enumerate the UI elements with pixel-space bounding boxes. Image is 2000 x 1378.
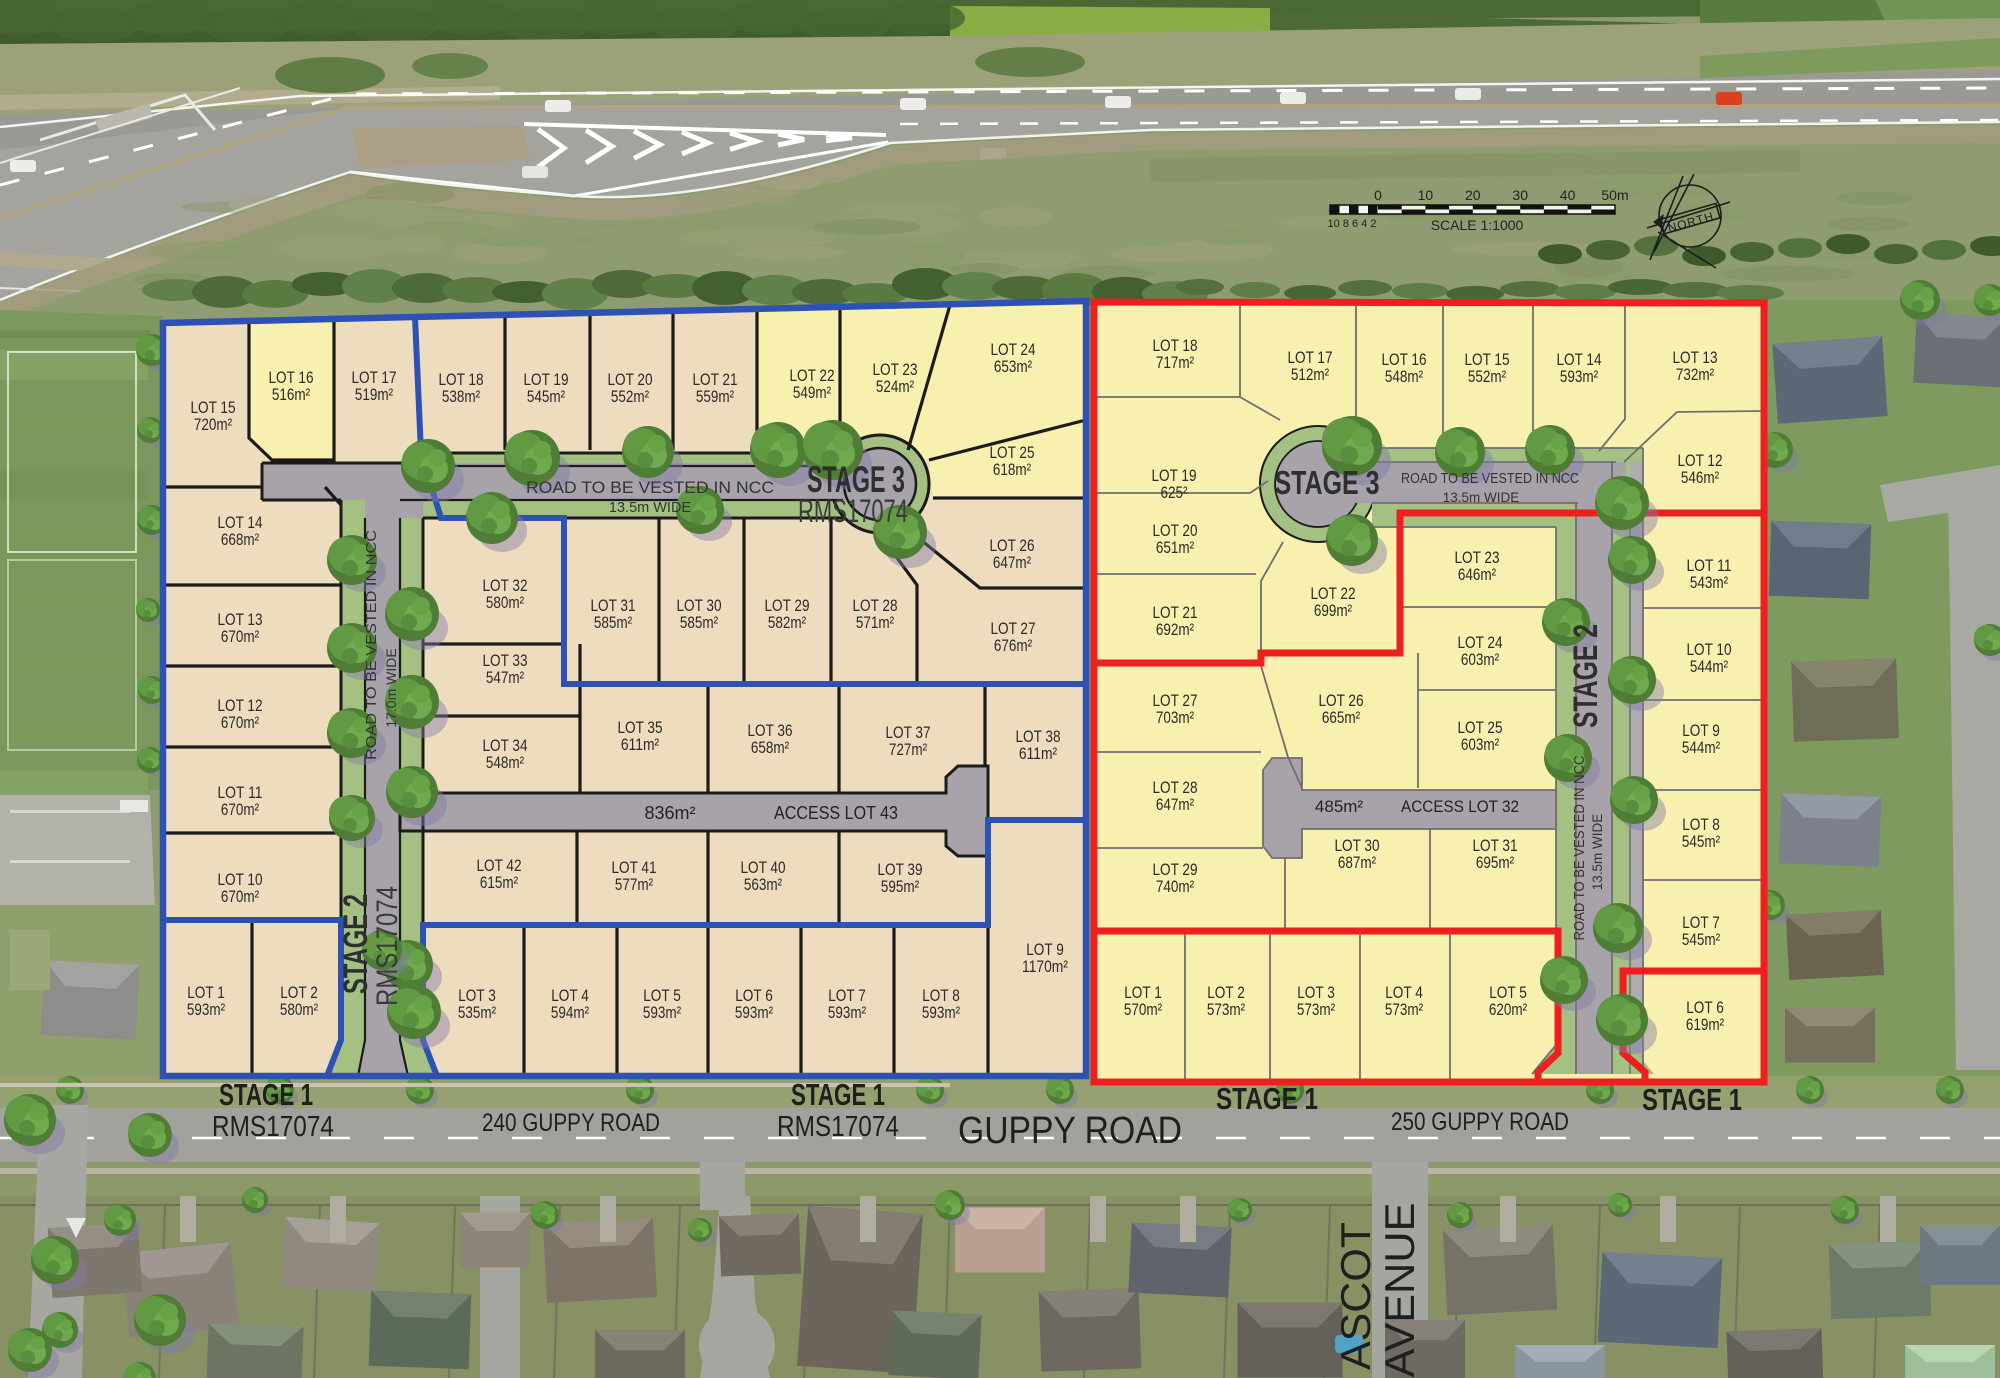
svg-text:LOT 3: LOT 3 — [1297, 984, 1335, 1002]
svg-text:13.5m WIDE: 13.5m WIDE — [609, 500, 692, 516]
svg-text:571m²: 571m² — [856, 614, 895, 632]
svg-text:LOT 24: LOT 24 — [1457, 634, 1502, 652]
svg-text:LOT 10: LOT 10 — [1686, 641, 1731, 659]
svg-text:620m²: 620m² — [1489, 1001, 1528, 1019]
svg-text:ROAD TO BE VESTED IN NCC: ROAD TO BE VESTED IN NCC — [1401, 471, 1579, 487]
svg-text:695m²: 695m² — [1476, 854, 1515, 872]
svg-text:670m²: 670m² — [221, 714, 260, 732]
svg-text:10 8 6 4 2: 10 8 6 4 2 — [1328, 218, 1377, 230]
svg-text:545m²: 545m² — [1682, 833, 1721, 851]
svg-text:LOT 22: LOT 22 — [1310, 585, 1355, 603]
svg-text:LOT 6: LOT 6 — [1686, 999, 1724, 1017]
svg-text:LOT 33: LOT 33 — [482, 652, 527, 670]
svg-text:LOT 35: LOT 35 — [617, 719, 662, 737]
svg-text:17.0m WIDE: 17.0m WIDE — [383, 648, 399, 727]
svg-text:STAGE 1: STAGE 1 — [1642, 1082, 1742, 1117]
svg-text:717m²: 717m² — [1156, 354, 1195, 372]
svg-text:647m²: 647m² — [1156, 796, 1195, 814]
svg-text:611m²: 611m² — [621, 736, 660, 754]
svg-text:LOT 25: LOT 25 — [1457, 719, 1502, 737]
svg-text:727m²: 727m² — [889, 741, 928, 759]
svg-text:544m²: 544m² — [1682, 739, 1721, 757]
svg-text:LOT 28: LOT 28 — [852, 597, 897, 615]
svg-text:552m²: 552m² — [1468, 368, 1507, 386]
svg-text:LOT 26: LOT 26 — [989, 537, 1034, 555]
svg-text:LOT 5: LOT 5 — [1489, 984, 1527, 1002]
svg-text:LOT 19: LOT 19 — [1151, 467, 1196, 485]
svg-text:LOT 14: LOT 14 — [1556, 351, 1601, 369]
svg-text:LOT 32: LOT 32 — [482, 577, 527, 595]
svg-text:740m²: 740m² — [1156, 878, 1195, 896]
svg-text:LOT 27: LOT 27 — [990, 620, 1035, 638]
svg-text:SCALE 1:1000: SCALE 1:1000 — [1431, 217, 1524, 233]
svg-text:593m²: 593m² — [187, 1001, 226, 1019]
svg-text:720m²: 720m² — [194, 416, 233, 434]
svg-text:LOT 34: LOT 34 — [482, 737, 527, 755]
svg-text:603m²: 603m² — [1461, 651, 1500, 669]
svg-text:524m²: 524m² — [876, 378, 915, 396]
svg-text:595m²: 595m² — [881, 878, 920, 896]
svg-text:250 GUPPY ROAD: 250 GUPPY ROAD — [1391, 1108, 1569, 1136]
svg-text:LOT 17: LOT 17 — [351, 369, 396, 387]
svg-text:703m²: 703m² — [1156, 709, 1195, 727]
svg-text:546m²: 546m² — [1681, 469, 1720, 487]
svg-text:LOT 20: LOT 20 — [607, 371, 652, 389]
svg-text:594m²: 594m² — [551, 1004, 590, 1022]
svg-text:670m²: 670m² — [221, 628, 260, 646]
svg-text:LOT 19: LOT 19 — [523, 371, 568, 389]
svg-text:LOT 17: LOT 17 — [1287, 349, 1332, 367]
svg-text:668m²: 668m² — [221, 531, 260, 549]
svg-text:LOT 27: LOT 27 — [1152, 692, 1197, 710]
svg-text:LOT 6: LOT 6 — [735, 987, 773, 1005]
svg-text:STAGE 1: STAGE 1 — [219, 1077, 313, 1112]
svg-text:LOT 1: LOT 1 — [187, 984, 225, 1002]
svg-text:653m²: 653m² — [994, 358, 1033, 376]
svg-text:699m²: 699m² — [1314, 602, 1353, 620]
svg-text:619m²: 619m² — [1686, 1016, 1725, 1034]
svg-text:618m²: 618m² — [993, 461, 1032, 479]
svg-text:577m²: 577m² — [615, 876, 654, 894]
svg-text:LOT 1: LOT 1 — [1124, 984, 1162, 1002]
svg-text:611m²: 611m² — [1019, 745, 1058, 763]
svg-text:676m²: 676m² — [994, 637, 1033, 655]
svg-text:RMS17074: RMS17074 — [212, 1111, 334, 1143]
svg-text:LOT 3: LOT 3 — [458, 987, 496, 1005]
svg-text:573m²: 573m² — [1385, 1001, 1424, 1019]
svg-text:580m²: 580m² — [486, 594, 525, 612]
svg-text:516m²: 516m² — [272, 386, 311, 404]
svg-text:LOT 7: LOT 7 — [828, 987, 866, 1005]
svg-text:GUPPY ROAD: GUPPY ROAD — [958, 1110, 1182, 1152]
svg-text:LOT 16: LOT 16 — [1381, 351, 1426, 369]
svg-text:ASCOT: ASCOT — [1332, 1222, 1379, 1370]
svg-text:545m²: 545m² — [527, 388, 566, 406]
svg-text:AVENUE: AVENUE — [1376, 1203, 1423, 1378]
svg-text:670m²: 670m² — [221, 801, 260, 819]
svg-text:10: 10 — [1418, 187, 1434, 203]
svg-text:13.5m WIDE: 13.5m WIDE — [1443, 490, 1520, 505]
svg-text:538m²: 538m² — [442, 388, 481, 406]
svg-text:615m²: 615m² — [480, 874, 519, 892]
svg-text:LOT 9: LOT 9 — [1682, 722, 1720, 740]
svg-text:570m²: 570m² — [1124, 1001, 1163, 1019]
svg-text:593m²: 593m² — [735, 1004, 774, 1022]
svg-text:670m²: 670m² — [221, 888, 260, 906]
svg-text:658m²: 658m² — [751, 739, 790, 757]
svg-text:732m²: 732m² — [1676, 366, 1715, 384]
svg-text:LOT 28: LOT 28 — [1152, 779, 1197, 797]
svg-text:512m²: 512m² — [1291, 366, 1330, 384]
svg-text:580m²: 580m² — [280, 1001, 319, 1019]
svg-text:LOT 29: LOT 29 — [1152, 861, 1197, 879]
svg-text:585m²: 585m² — [594, 614, 633, 632]
svg-text:LOT 30: LOT 30 — [676, 597, 721, 615]
svg-text:LOT 11: LOT 11 — [1686, 557, 1731, 575]
svg-text:LOT 7: LOT 7 — [1682, 914, 1720, 932]
svg-text:LOT 37: LOT 37 — [885, 724, 930, 742]
svg-text:STAGE 2: STAGE 2 — [1567, 624, 1605, 728]
svg-text:LOT 22: LOT 22 — [789, 367, 834, 385]
svg-text:LOT 10: LOT 10 — [217, 871, 262, 889]
svg-text:687m²: 687m² — [1338, 854, 1377, 872]
svg-text:519m²: 519m² — [355, 386, 394, 404]
svg-text:LOT 8: LOT 8 — [1682, 816, 1720, 834]
svg-text:LOT 25: LOT 25 — [989, 444, 1034, 462]
svg-text:LOT 2: LOT 2 — [280, 984, 318, 1002]
svg-text:545m²: 545m² — [1682, 931, 1721, 949]
svg-text:ROAD TO BE VESTED IN NCC: ROAD TO BE VESTED IN NCC — [1572, 756, 1588, 941]
svg-text:LOT 2: LOT 2 — [1207, 984, 1245, 1002]
svg-text:692m²: 692m² — [1156, 621, 1195, 639]
svg-text:563m²: 563m² — [744, 876, 783, 894]
svg-text:RMS17074: RMS17074 — [371, 886, 404, 1006]
svg-text:593m²: 593m² — [922, 1004, 961, 1022]
svg-text:LOT 9: LOT 9 — [1026, 941, 1064, 959]
svg-text:1170m²: 1170m² — [1022, 958, 1068, 976]
svg-text:647m²: 647m² — [993, 554, 1032, 572]
svg-text:ROAD TO BE VESTED IN NCC: ROAD TO BE VESTED IN NCC — [526, 479, 774, 497]
svg-text:0: 0 — [1374, 187, 1382, 203]
svg-text:646m²: 646m² — [1458, 566, 1497, 584]
svg-text:STAGE 1: STAGE 1 — [1216, 1081, 1318, 1116]
svg-text:LOT 42: LOT 42 — [476, 857, 521, 875]
svg-text:LOT 18: LOT 18 — [1152, 337, 1197, 355]
svg-text:LOT 13: LOT 13 — [1672, 349, 1717, 367]
svg-text:LOT 36: LOT 36 — [747, 722, 792, 740]
svg-text:LOT 4: LOT 4 — [551, 987, 589, 1005]
svg-text:LOT 23: LOT 23 — [872, 361, 917, 379]
svg-text:LOT 41: LOT 41 — [611, 859, 656, 877]
svg-text:593m²: 593m² — [828, 1004, 867, 1022]
svg-text:LOT 29: LOT 29 — [764, 597, 809, 615]
svg-text:50m: 50m — [1601, 187, 1628, 203]
svg-text:573m²: 573m² — [1297, 1001, 1336, 1019]
svg-text:582m²: 582m² — [768, 614, 807, 632]
svg-text:LOT 15: LOT 15 — [1464, 351, 1509, 369]
svg-text:585m²: 585m² — [680, 614, 719, 632]
svg-text:LOT 31: LOT 31 — [1472, 837, 1517, 855]
svg-text:593m²: 593m² — [1560, 368, 1599, 386]
svg-text:LOT 21: LOT 21 — [692, 371, 737, 389]
svg-text:13.5m WIDE: 13.5m WIDE — [1590, 814, 1605, 891]
svg-text:LOT 30: LOT 30 — [1334, 837, 1379, 855]
svg-text:485m²: 485m² — [1315, 797, 1364, 816]
svg-text:RMS17074: RMS17074 — [777, 1111, 899, 1143]
svg-text:30: 30 — [1512, 187, 1528, 203]
svg-text:573m²: 573m² — [1207, 1001, 1246, 1019]
svg-text:548m²: 548m² — [486, 754, 525, 772]
svg-text:ACCESS LOT 43: ACCESS LOT 43 — [774, 803, 898, 823]
svg-text:548m²: 548m² — [1385, 368, 1424, 386]
svg-text:LOT 26: LOT 26 — [1318, 692, 1363, 710]
svg-text:LOT 12: LOT 12 — [1677, 452, 1722, 470]
svg-text:40: 40 — [1560, 187, 1576, 203]
svg-text:543m²: 543m² — [1690, 574, 1729, 592]
svg-text:LOT 20: LOT 20 — [1152, 522, 1197, 540]
svg-text:STAGE 3: STAGE 3 — [1275, 464, 1380, 501]
svg-text:552m²: 552m² — [611, 388, 650, 406]
svg-text:LOT 15: LOT 15 — [190, 399, 235, 417]
svg-text:535m²: 535m² — [458, 1004, 497, 1022]
svg-text:LOT 21: LOT 21 — [1152, 604, 1197, 622]
svg-text:665m²: 665m² — [1322, 709, 1361, 727]
svg-text:LOT 24: LOT 24 — [990, 341, 1035, 359]
svg-text:603m²: 603m² — [1461, 736, 1500, 754]
svg-text:20: 20 — [1465, 187, 1481, 203]
svg-text:LOT 11: LOT 11 — [217, 784, 262, 802]
svg-text:593m²: 593m² — [643, 1004, 682, 1022]
svg-text:LOT 23: LOT 23 — [1454, 549, 1499, 567]
svg-text:LOT 12: LOT 12 — [217, 697, 262, 715]
svg-text:LOT 8: LOT 8 — [922, 987, 960, 1005]
svg-text:LOT 40: LOT 40 — [740, 859, 785, 877]
svg-text:549m²: 549m² — [793, 384, 832, 402]
svg-text:STAGE 2: STAGE 2 — [337, 894, 375, 994]
svg-text:625²: 625² — [1160, 484, 1188, 502]
svg-text:ACCESS LOT 32: ACCESS LOT 32 — [1401, 797, 1519, 816]
svg-text:544m²: 544m² — [1690, 658, 1729, 676]
svg-text:ROAD TO BE VESTED IN NCC: ROAD TO BE VESTED IN NCC — [363, 530, 380, 760]
svg-text:LOT 5: LOT 5 — [643, 987, 681, 1005]
svg-text:LOT 31: LOT 31 — [590, 597, 635, 615]
svg-text:STAGE 1: STAGE 1 — [791, 1077, 885, 1112]
svg-text:651m²: 651m² — [1156, 539, 1195, 557]
svg-text:LOT 14: LOT 14 — [217, 514, 262, 532]
svg-text:RMS17074: RMS17074 — [798, 493, 908, 529]
svg-text:240 GUPPY ROAD: 240 GUPPY ROAD — [482, 1109, 660, 1137]
svg-text:559m²: 559m² — [696, 388, 735, 406]
svg-text:LOT 16: LOT 16 — [268, 369, 313, 387]
svg-text:LOT 18: LOT 18 — [438, 371, 483, 389]
svg-text:LOT 13: LOT 13 — [217, 611, 262, 629]
svg-text:LOT 38: LOT 38 — [1015, 728, 1060, 746]
svg-text:LOT 39: LOT 39 — [877, 861, 922, 879]
svg-text:836m²: 836m² — [644, 803, 695, 823]
svg-text:LOT 4: LOT 4 — [1385, 984, 1423, 1002]
svg-text:547m²: 547m² — [486, 669, 525, 687]
